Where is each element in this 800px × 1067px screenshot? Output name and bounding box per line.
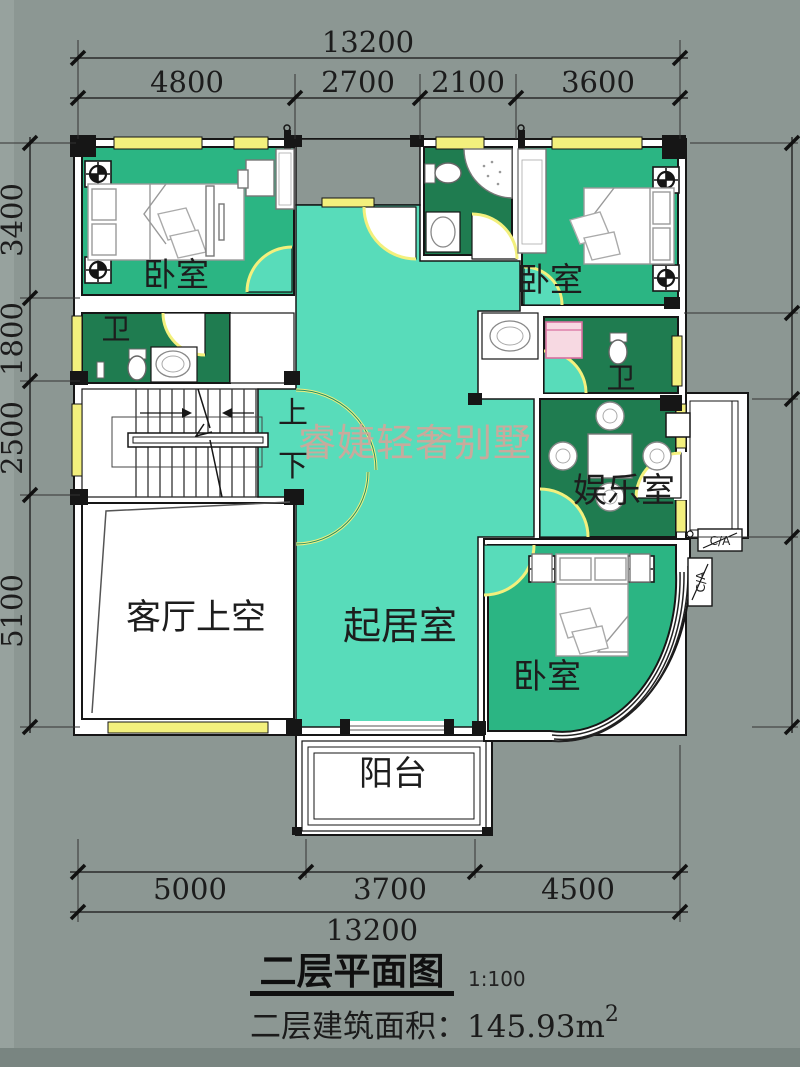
bed-icon [570,188,674,264]
room-label-bedroom-top-right: 卧室 [517,260,583,299]
dim-bottom-seg-1: 5000 [153,872,227,906]
window-icon [676,500,686,532]
dim-left-seg-1: 3400 [0,183,29,257]
window-icon [436,137,484,149]
chair-icon [549,442,577,470]
dim-top-seg-2: 2700 [321,65,395,99]
background-left-band [0,0,14,1067]
nightstand-icon [532,554,552,582]
room-label-entertainment: 娱乐室 [573,471,675,511]
chair-icon [596,402,624,430]
window-icon [72,316,82,380]
background-bottom-band [0,1048,800,1067]
room-label-bath-top-left: 卫 [101,312,130,346]
window-icon [672,336,682,386]
dim-left-seg-3: 2500 [0,401,29,475]
ac-unit-label: C/A [694,571,708,592]
page-title: 二层平面图 [260,949,445,993]
tv-icon [206,186,214,256]
dim-left-seg-2: 1800 [0,302,29,376]
chair-icon [238,170,248,188]
bed-icon [556,554,628,656]
washing-machine-icon [546,322,582,358]
room-label-balcony: 阳台 [359,754,427,794]
balcony-door-opening [340,719,454,735]
bottle-icon [97,362,104,378]
watermark-text: 睿婕轻奢别墅 [298,421,532,465]
dim-left-seg-4: 5100 [0,574,29,648]
room-label-bedroom-top-left: 卧室 [143,255,209,294]
scale-label: 1:100 [468,967,526,991]
floor-plan-page: C/A C/A 卧室 卫 卧室 卫 娱乐室 客厅上空 起居室 卧室 阳台 上 下… [0,0,800,1067]
window-icon [234,137,268,149]
dim-top-total: 13200 [322,25,414,59]
window-icon [72,404,82,476]
room-label-bedroom-bottom-right: 卧室 [513,657,581,697]
nightstand-icon [630,554,650,582]
dim-bottom-seg-2: 3700 [353,872,427,906]
dim-top-seg-3: 2100 [431,65,505,99]
window-icon [552,137,642,149]
chair-icon [643,442,671,470]
window-icon [322,198,374,207]
room-label-sitting: 起居室 [343,604,457,648]
window-icon [114,137,202,149]
desk-icon [246,160,274,196]
right-balcony-floor [690,401,738,530]
floor-plan-canvas: C/A C/A 卧室 卫 卧室 卫 娱乐室 客厅上空 起居室 卧室 阳台 上 下… [0,0,800,1067]
room-label-living-void: 客厅上空 [126,598,266,638]
area-text: 二层建筑面积：145.93m2 [250,1002,619,1045]
tv-shelf-icon [219,204,224,240]
title-underline [250,991,454,996]
ac-unit-label: C/A [710,534,731,548]
toilet-icon [425,164,435,183]
dim-top-seg-4: 3600 [561,65,635,99]
window-icon [108,722,268,733]
shaft-box [666,413,690,437]
room-label-bath-right: 卫 [606,361,635,395]
dim-top-seg-1: 4800 [150,65,224,99]
dim-bottom-seg-3: 4500 [541,872,615,906]
dim-bottom-total: 13200 [326,913,418,947]
